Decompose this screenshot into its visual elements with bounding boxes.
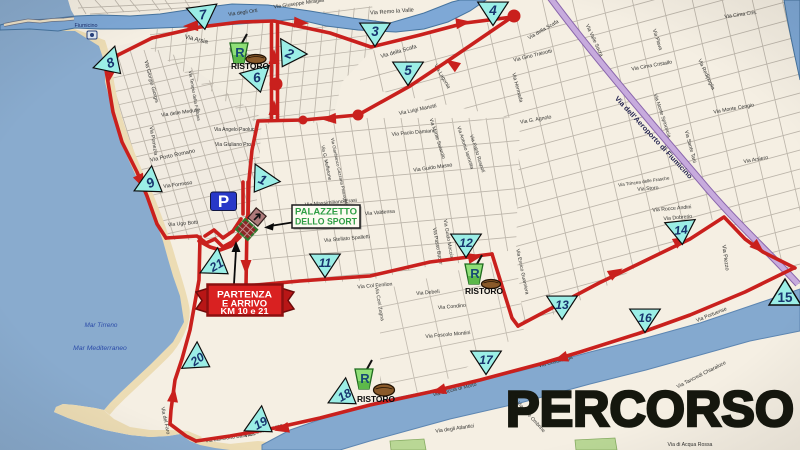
svg-text:R: R [235,45,245,60]
svg-text:R: R [360,371,370,386]
svg-text:DELLO SPORT: DELLO SPORT [295,217,357,228]
svg-text:4: 4 [488,3,497,18]
svg-text:3: 3 [371,24,379,39]
svg-text:KM 10 e 21: KM 10 e 21 [221,307,270,316]
svg-text:Fiumicino: Fiumicino [74,23,97,29]
svg-text:PERCORSO: PERCORSO [506,381,794,437]
svg-text:RISTORO: RISTORO [231,62,269,71]
svg-text:5: 5 [404,63,412,78]
svg-text:16: 16 [638,311,652,325]
svg-text:17: 17 [479,353,494,367]
svg-text:15: 15 [777,290,793,305]
svg-text:Mar Tirreno: Mar Tirreno [85,322,118,329]
svg-text:R: R [470,266,480,281]
svg-text:Via Giuliano Prost: Via Giuliano Prost [215,142,256,148]
svg-text:RISTORO: RISTORO [357,395,395,404]
svg-text:12: 12 [459,236,473,250]
svg-text:Mar Mediterraneo: Mar Mediterraneo [73,345,127,352]
svg-text:P: P [218,192,229,211]
svg-text:13: 13 [555,298,569,312]
svg-text:11: 11 [319,256,332,270]
svg-text:Via di Acqua Rossa: Via di Acqua Rossa [668,442,713,448]
svg-text:14: 14 [673,222,688,237]
svg-text:RISTORO: RISTORO [465,287,503,296]
svg-text:Via Angelo Paolucci: Via Angelo Paolucci [214,127,258,133]
